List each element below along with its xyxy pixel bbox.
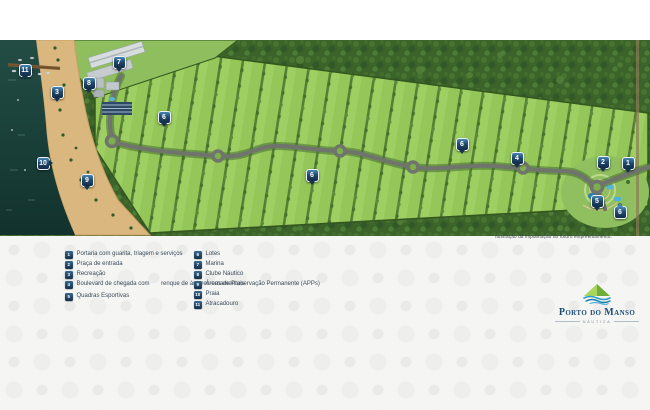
legend-label: Praça de entrada — [77, 261, 123, 269]
legend-item: 7 Marina — [194, 261, 320, 269]
legend-number-badge: 1 — [65, 251, 73, 259]
map-marker[interactable]: 9 — [81, 174, 94, 187]
legend-number-badge: 8 — [194, 271, 202, 279]
map-marker[interactable]: 5 — [591, 195, 604, 208]
legend-label: Marina — [206, 261, 224, 269]
map-marker-number: 9 — [85, 177, 89, 184]
legend-label: Recreação — [77, 271, 106, 279]
brand-tagline-row: Náutica — [549, 319, 645, 324]
map-marker[interactable]: 3 — [51, 86, 64, 99]
map-marker[interactable]: 10 — [37, 157, 50, 170]
legend-item: 8 Clube Náutico — [194, 271, 320, 279]
map-markers: 11 7 8 3 10 9 — [0, 0, 650, 236]
masterplan-map: 11 7 8 3 10 9 — [0, 40, 650, 236]
map-marker-number: 6 — [310, 172, 314, 179]
map-marker-number: 1 — [626, 160, 630, 167]
map-disclaimer: Ilustração da implantação do futuro empr… — [430, 234, 612, 239]
legend-number-badge: 9 — [194, 281, 202, 289]
legend-column-right: 6 Lotes 7 Marina 8 Clube Náutico — [194, 251, 320, 312]
map-marker-number: 7 — [117, 59, 121, 66]
legend-number-badge: 3 — [65, 271, 73, 279]
map-marker[interactable]: 4 — [511, 152, 524, 165]
legend-number-badge: 10 — [194, 291, 202, 299]
map-marker-number: 2 — [601, 159, 605, 166]
legend-item: 9 Áreas de Preservação Permanente (APPs) — [194, 281, 320, 289]
legend-number-badge: 11 — [194, 301, 202, 309]
legend-label: Áreas de Preservação Permanente (APPs) — [206, 281, 320, 289]
brand-name: Porto do Manso — [549, 307, 645, 318]
map-marker-number: 3 — [55, 89, 59, 96]
legend-label: Atracadouro — [206, 301, 239, 309]
legend-label: Quadras Esportivas — [77, 293, 130, 301]
map-marker[interactable]: 7 — [113, 56, 126, 69]
map-marker[interactable]: 11 — [19, 64, 32, 77]
brand-tagline: Náutica — [583, 319, 612, 324]
legend-number-badge: 6 — [194, 251, 202, 259]
brand-logo: Porto do Manso Náutica — [549, 282, 645, 324]
legend-label: Boulevard de chegada com — [77, 281, 150, 289]
legend-section: 1 Portaria com guarita, triagem e serviç… — [0, 236, 650, 410]
legend-item: 10 Praia — [194, 291, 320, 299]
legend-label: Praia — [206, 291, 220, 299]
legend-item: 11 Atracadouro — [194, 301, 320, 309]
map-marker[interactable]: 6 — [306, 169, 319, 182]
map-marker[interactable]: 8 — [83, 77, 96, 90]
legend-number-badge: 4 — [65, 281, 73, 289]
brochure-page: 11 7 8 3 10 9 — [0, 0, 650, 410]
map-marker[interactable]: 1 — [622, 157, 635, 170]
map-marker[interactable]: 6 — [614, 206, 627, 219]
map-marker-number: 11 — [21, 67, 28, 74]
logo-mountain-wave-icon — [580, 282, 614, 305]
map-marker[interactable]: 2 — [597, 156, 610, 169]
tagline-rule-left — [555, 321, 580, 322]
map-marker-number: 6 — [618, 209, 622, 216]
map-marker-number: 4 — [515, 155, 519, 162]
map-marker-number: 5 — [595, 198, 599, 205]
map-marker[interactable]: 6 — [456, 138, 469, 151]
map-marker-number: 6 — [460, 141, 464, 148]
legend-number-badge: 2 — [65, 261, 73, 269]
legend-label: Clube Náutico — [206, 271, 244, 279]
map-marker-number: 6 — [162, 114, 166, 121]
map-marker-number: 8 — [87, 80, 91, 87]
legend-number-badge: 5 — [65, 293, 73, 301]
tagline-rule-right — [614, 321, 639, 322]
legend-number-badge: 7 — [194, 261, 202, 269]
legend-label: Portaria com guarita, triagem e serviços — [77, 251, 183, 259]
map-marker-number: 10 — [39, 160, 47, 167]
map-marker[interactable]: 6 — [158, 111, 171, 124]
legend-label: Lotes — [206, 251, 221, 259]
legend-item: 6 Lotes — [194, 251, 320, 259]
